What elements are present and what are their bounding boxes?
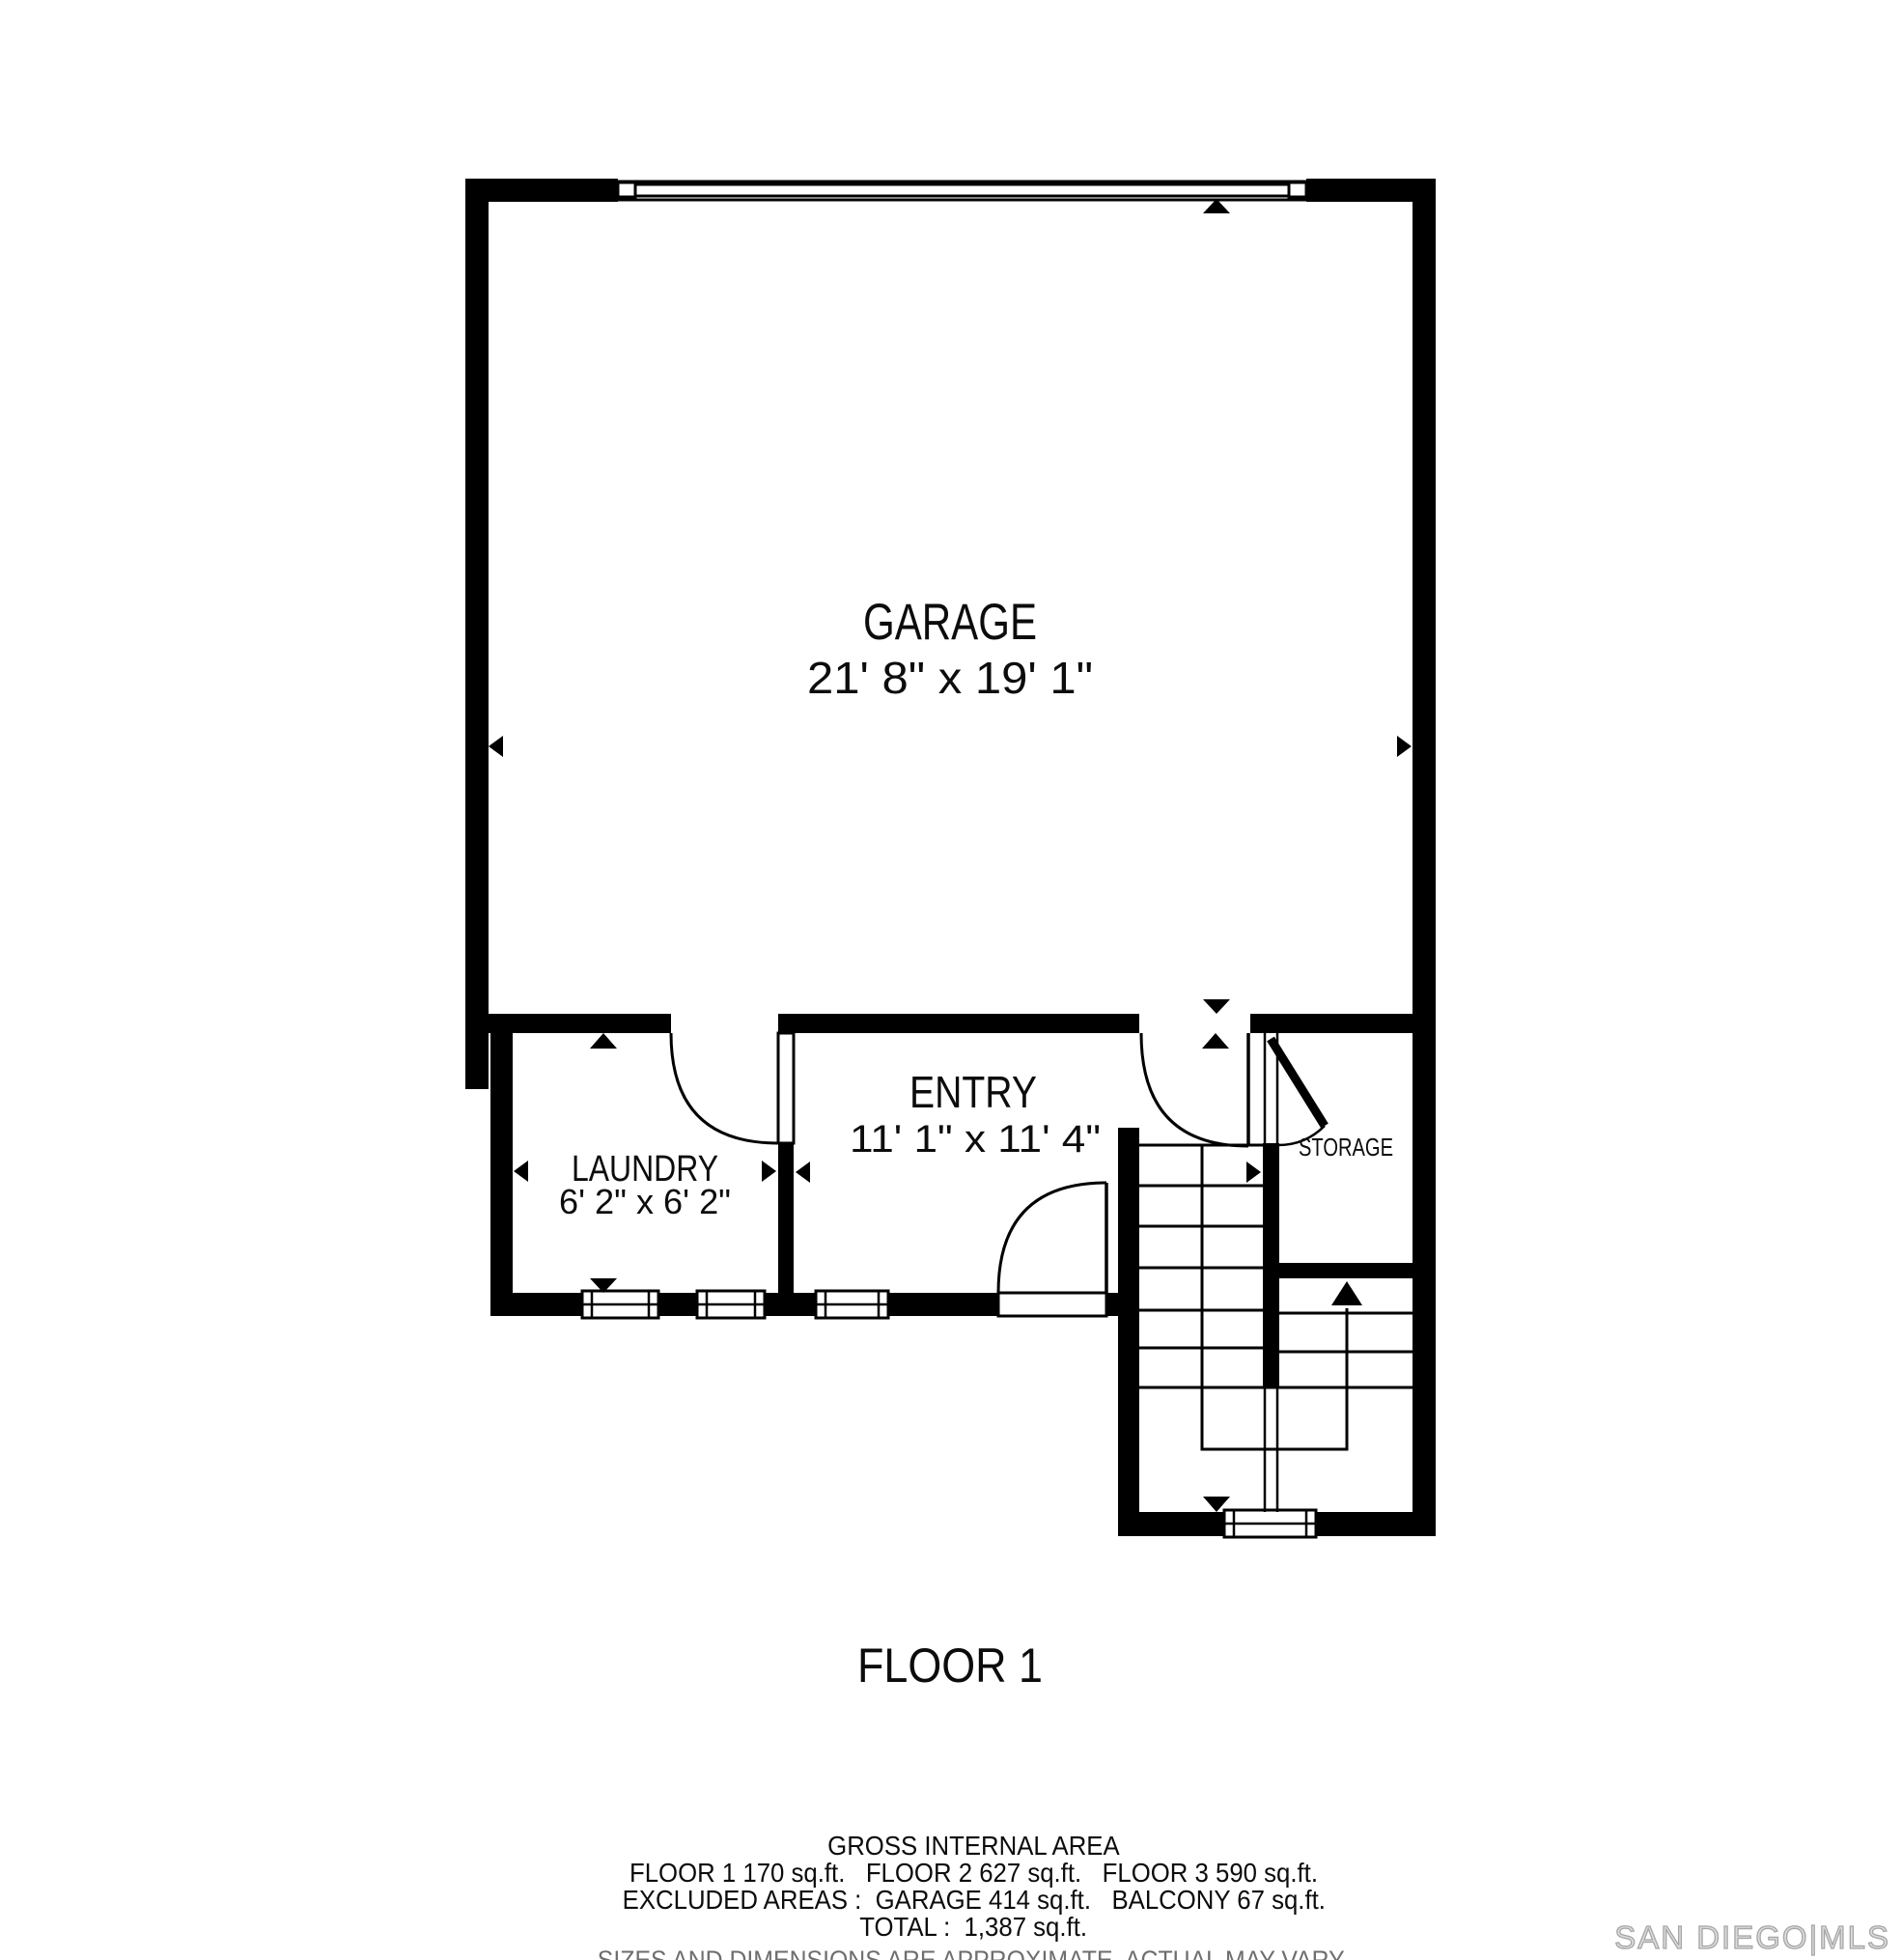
floor-title: FLOOR 1: [857, 1638, 1043, 1693]
entry-window: [816, 1291, 888, 1318]
disclaimer-text: SIZES AND DIMENSIONS ARE APPROXIMATE, AC…: [598, 1946, 1349, 1960]
windows: [582, 1291, 1316, 1537]
wall-storage-bottom: [1263, 1263, 1413, 1278]
garage-door-end-right: [1289, 182, 1306, 197]
wall-laundry-left: [490, 1033, 513, 1315]
entry-arrow-right-icon: [1246, 1162, 1261, 1183]
entry-door-threshold: [998, 1293, 1106, 1316]
entry-label: ENTRY: [909, 1067, 1037, 1117]
laundry-dimensions: 6' 2" x 6' 2": [559, 1182, 731, 1221]
garage-door: [618, 182, 1306, 213]
wall-garage-bottom-b: [778, 1014, 1139, 1033]
laundry-window-2: [697, 1291, 765, 1318]
storage-label: STORAGE: [1299, 1133, 1393, 1162]
san-diego-mls-watermark: SAN DIEGO|MLS: [1614, 1919, 1890, 1956]
wall-bottom-b: [658, 1293, 697, 1316]
laundry-door-leaf: [778, 1033, 794, 1143]
garage-entry-door-arc: [1141, 1033, 1248, 1146]
garage-door-end-left: [618, 182, 635, 197]
floor-plan-page: GARAGE 21' 8" x 19' 1" ENTRY 11' 1" x 11…: [0, 0, 1902, 1960]
entry-door-arc: [998, 1183, 1106, 1293]
stair-up-arrow-icon: [1331, 1281, 1362, 1305]
storage-door-leaf: [1271, 1039, 1325, 1126]
wall-bottom-a: [490, 1293, 582, 1316]
storage-door: [1265, 1033, 1325, 1145]
stair-window: [1224, 1510, 1316, 1537]
garage-arrow-left-icon: [489, 736, 503, 757]
wall-garage-bottom-a: [465, 1014, 671, 1033]
laundry-arrow-up-icon: [590, 1033, 617, 1049]
wall-bottom-d: [888, 1293, 998, 1316]
wall-laundry-entry-divider: [778, 1143, 794, 1293]
garage-arrow-right-icon: [1397, 736, 1412, 757]
wall-garage-bottom-c: [1250, 1014, 1413, 1033]
entry-exterior-door: [998, 1183, 1106, 1316]
walls: [465, 179, 1436, 1536]
wall-stair-west: [1118, 1128, 1139, 1536]
garage-label: GARAGE: [863, 594, 1037, 651]
laundry-door: [671, 1033, 794, 1143]
laundry-door-arc: [671, 1033, 778, 1143]
garage-dimensions: 21' 8" x 19' 1": [807, 653, 1093, 703]
garage-door-panel: [620, 184, 1304, 196]
garage-arrow-down-icon: [1203, 999, 1230, 1014]
laundry-arrow-left-icon: [514, 1161, 528, 1182]
entry-arrow-left-icon: [796, 1162, 810, 1183]
wall-right-outer: [1413, 179, 1436, 1536]
laundry-window-1: [582, 1291, 658, 1318]
entry-dimensions: 11' 1" x 11' 4": [850, 1118, 1101, 1161]
garage-entry-door: [1141, 1033, 1248, 1146]
wall-garage-left: [465, 179, 489, 1089]
wall-bottom-c: [765, 1293, 816, 1316]
wall-top-left: [465, 179, 618, 202]
wall-stair-bottom-a: [1118, 1512, 1224, 1536]
entry-arrow-up-icon: [1202, 1033, 1229, 1049]
wall-stair-bottom-b: [1316, 1512, 1436, 1536]
floor-plan-drawing: GARAGE 21' 8" x 19' 1" ENTRY 11' 1" x 11…: [0, 0, 1902, 1960]
laundry-arrow-right-icon: [762, 1161, 776, 1182]
